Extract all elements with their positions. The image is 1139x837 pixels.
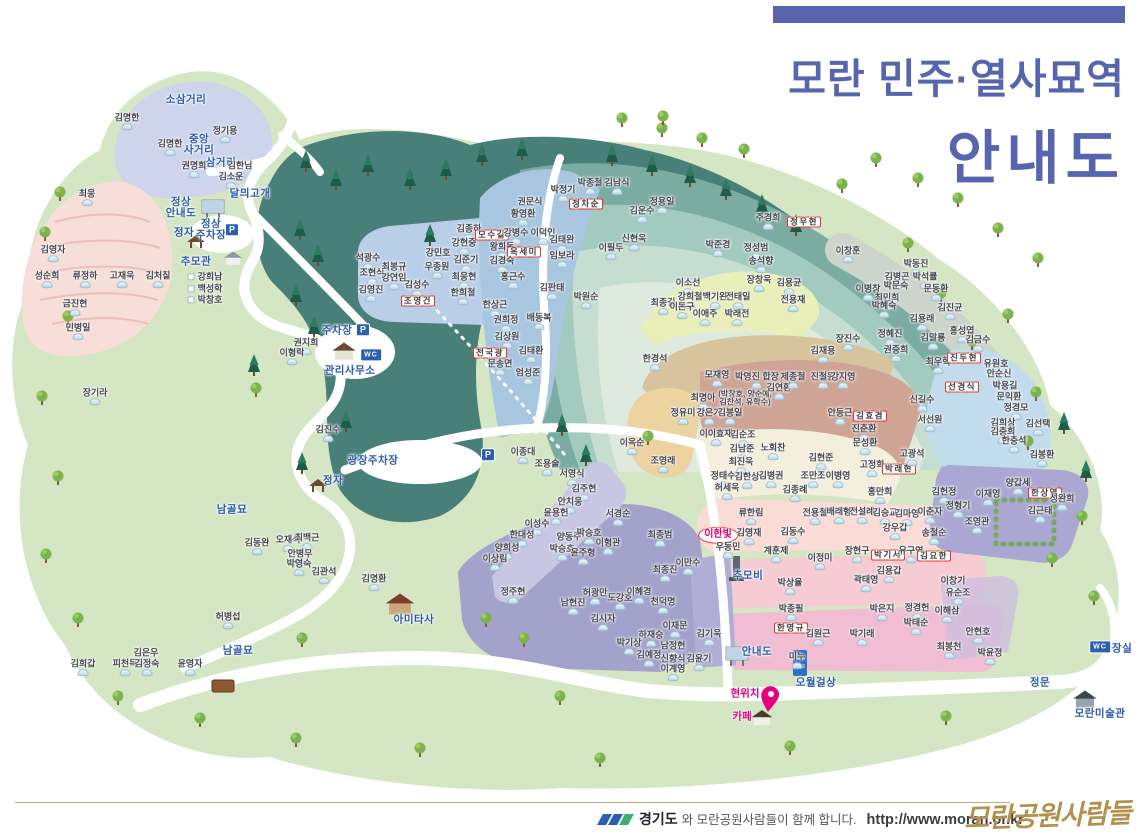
- map-grave-label: 윤주형: [571, 548, 596, 565]
- map-grave-label: 성완희: [1050, 494, 1075, 511]
- map-grave-label: 장진수: [836, 334, 861, 351]
- map-grave-label: 계훈제: [764, 546, 789, 563]
- map-grave-label: 고정희: [860, 460, 885, 477]
- footer-tagline: 와 모란공원사람들이 함께 합니다.: [682, 809, 857, 828]
- map-place-label: 소삼거리: [166, 94, 207, 105]
- map-grave-label: 권명희: [182, 161, 207, 178]
- map-place-label: 오월걸상: [796, 677, 837, 688]
- map-place-label: 아미타사: [394, 614, 435, 625]
- map-grave-label: 우종원: [425, 262, 450, 279]
- map-grave-label: 김현준: [809, 453, 834, 470]
- map-grave-label: 박혜숙: [872, 301, 897, 318]
- map-grave-label: 노회찬: [761, 443, 786, 460]
- map-grave-label: 제종철: [781, 372, 806, 389]
- map-grave-label: 류정하: [73, 271, 98, 288]
- map-grave-label: 안동근: [828, 408, 853, 425]
- map-grave-label: 성순희: [35, 271, 60, 288]
- map-place-label: 주차장: [322, 325, 352, 336]
- map-grave-label: 한영규: [774, 623, 808, 634]
- parking-icon: P: [481, 448, 495, 461]
- map-grave-label: 고광석: [900, 449, 925, 466]
- gyeonggi-label: 경기도: [639, 809, 678, 829]
- map-grave-label: 이애주: [693, 309, 718, 326]
- map-grave-label: 류한림: [739, 508, 764, 525]
- map-grave-label: 조영관: [965, 517, 990, 534]
- map-grave-label: 주경희: [756, 213, 781, 230]
- map-place-label: 정상 주차장: [196, 219, 226, 241]
- parking-icon: P: [356, 323, 370, 336]
- map-grave-label: 홍근수: [501, 272, 526, 289]
- map-subtitle: 안내도: [765, 111, 1125, 195]
- map-place-label: 정상 안내도: [166, 197, 196, 219]
- map-grave-label: 김선택: [1026, 419, 1051, 436]
- map-grave-label: 최봉천: [937, 642, 962, 659]
- map-grave-label: 문송면: [488, 359, 513, 376]
- map-grave-label: 조용술: [535, 459, 560, 476]
- map-grave-label: 윤영자: [178, 659, 203, 676]
- map-grave-label: 금진현: [63, 299, 88, 316]
- map-grave-label: 미누: [789, 652, 806, 669]
- map-grave-label: 이이효재: [699, 429, 732, 446]
- map-grave-label: 문동환: [924, 284, 949, 301]
- map-grave-label: 전용철: [803, 508, 828, 525]
- map-place-label: 추모비: [733, 570, 763, 581]
- restroom-icon: WC: [1089, 640, 1111, 653]
- map-grave-label: 강현중: [452, 238, 477, 255]
- map-place-label: 관리사무소: [325, 365, 376, 376]
- map-grave-label: (박창호, 양순예, 김찬석, 유학수): [718, 391, 772, 408]
- map-grave-label: 장창욱: [747, 275, 772, 292]
- map-grave-label: 백기완: [703, 292, 728, 309]
- map-grave-label: 정주현: [501, 587, 526, 604]
- map-canvas: 소삼거리김명한정기용중앙 사거리김명한삼거리권명희김한님김소운달믜고개정상 안내…: [0, 0, 1139, 837]
- map-grave-label: 전국광: [473, 348, 507, 359]
- map-grave-label: 최웅: [79, 189, 96, 206]
- map-grave-label: 김진수: [316, 425, 341, 442]
- map-grave-label: 강지영: [831, 372, 856, 389]
- map-place-label: 정자: [323, 475, 343, 486]
- map-grave-label: 김봉일: [718, 408, 743, 425]
- map-grave-label: 이필두: [599, 243, 624, 260]
- map-grave-label: 한충석: [1002, 436, 1027, 453]
- map-grave-label: 박영숙: [287, 559, 312, 576]
- map-grave-label: 정기용: [213, 126, 238, 143]
- map-grave-label: 이해삼: [935, 606, 960, 623]
- map-grave-label: 김기욱: [697, 629, 722, 646]
- map-grave-label: 김남식: [605, 178, 630, 195]
- map-grave-label: 송철순: [922, 528, 947, 545]
- map-place-label: 광장주차장: [348, 455, 399, 466]
- map-grave-label: 고재욱: [110, 271, 135, 288]
- map-grave-label: 이혜경: [627, 587, 652, 604]
- map-grave-label: 김판태: [540, 283, 565, 300]
- map-grave-label: 양갑세: [1006, 478, 1031, 495]
- map-place-label: 남골묘: [223, 645, 253, 656]
- map-grave-label: 김요한: [917, 551, 951, 562]
- map-grave-label: 유순조: [946, 588, 971, 605]
- restroom-icon: WC: [360, 348, 382, 361]
- map-grave-label: 김정숙: [135, 659, 160, 676]
- map-grave-label: 안현호: [966, 627, 991, 644]
- map-grave-label: 김금수: [966, 335, 991, 352]
- map-grave-label: 이형락: [280, 348, 305, 365]
- map-grave-label: 이재영: [976, 489, 1001, 506]
- map-grave-label: 조영래: [651, 456, 676, 473]
- map-grave-label: 이만수: [676, 558, 701, 575]
- map-grave-label: 이창훈: [836, 246, 861, 263]
- footer-rule: [15, 802, 1010, 803]
- map-grave-label: 김희갑: [71, 659, 96, 676]
- map-grave-label: 우동민: [716, 542, 741, 559]
- map-grave-label: 김동완: [245, 538, 270, 555]
- map-grave-label: 이종대: [511, 447, 536, 464]
- map-grave-label: 박상율: [778, 578, 803, 595]
- map-grave-label: 김처칠: [146, 271, 171, 288]
- map-grave-label: 강희남: [188, 272, 223, 281]
- map-grave-label: 정차순: [569, 199, 603, 210]
- map-grave-label: 김말룡: [921, 333, 946, 350]
- map-grave-label: 천덕명: [651, 597, 676, 614]
- map-grave-label: 권희정: [494, 315, 519, 332]
- map-grave-label: 이형관: [596, 538, 621, 555]
- map-grave-label: 김예정: [637, 650, 662, 667]
- map-grave-label: 김용래: [910, 314, 935, 331]
- map-grave-label: 황영환: [511, 209, 536, 226]
- title-accent-bar: [773, 6, 1125, 23]
- map-grave-label: 김봉환: [1030, 450, 1055, 467]
- map-grave-label: 정유미: [671, 408, 696, 425]
- map-grave-label: 정우현: [787, 217, 821, 228]
- map-grave-label: 모재영: [705, 370, 730, 387]
- map-grave-label: 민병일: [66, 323, 91, 340]
- map-grave-label: 최종범: [648, 530, 673, 547]
- map-grave-label: 송석향: [749, 256, 774, 273]
- map-grave-label: 최종진: [653, 565, 678, 582]
- map-grave-label: 김영진: [359, 285, 384, 302]
- map-grave-label: 김용균: [777, 278, 802, 295]
- map-grave-label: 문성환: [853, 438, 878, 455]
- map-grave-label: 선경식: [945, 382, 979, 393]
- map-grave-label: 박준경: [706, 240, 731, 257]
- map-place-label: 중앙 사거리: [184, 134, 214, 156]
- map-grave-label: 김효겸: [853, 411, 887, 422]
- map-grave-label: 김명한: [115, 113, 140, 130]
- map-grave-label: 신현욱: [622, 234, 647, 251]
- map-grave-label: 김근태: [1028, 506, 1053, 523]
- map-place-label: 남골묘: [217, 504, 247, 515]
- map-grave-label: 박창호: [188, 295, 223, 304]
- map-grave-label: 남현진: [561, 598, 586, 615]
- map-grave-label: 이재문: [663, 621, 688, 638]
- map-grave-label: 이돈구: [670, 302, 695, 319]
- map-grave-label: 김진균: [938, 303, 963, 320]
- map-grave-label: 임보라: [550, 251, 575, 268]
- map-grave-label: 장기라: [83, 388, 108, 405]
- map-grave-label: 김원근: [806, 629, 831, 646]
- map-title: 모란 민주·열사묘역: [765, 45, 1125, 105]
- map-grave-label: 김윤기: [687, 654, 712, 671]
- map-grave-label: 서선원: [918, 415, 943, 432]
- map-grave-label: 엄성준: [516, 368, 541, 385]
- map-place-label: 카페: [732, 711, 751, 722]
- footer: 경기도 와 모란공원사람들이 함께 합니다. http://www.moran.…: [0, 797, 1139, 837]
- map-grave-label: 서경순: [606, 509, 631, 526]
- map-grave-label: 박태순: [904, 618, 929, 635]
- map-grave-label: 이춘자: [918, 507, 943, 524]
- map-place-label: 정문: [1030, 677, 1050, 688]
- map-place-label: 달믜고개: [230, 188, 271, 199]
- map-place-label: 정자: [174, 227, 194, 238]
- moran-people-logo: 모란공원사람들: [963, 791, 1131, 836]
- map-grave-label: 강연임: [382, 273, 407, 290]
- map-grave-label: 배동복: [527, 313, 552, 330]
- parking-icon: P: [225, 223, 239, 236]
- map-grave-label: 박원순: [574, 292, 599, 309]
- map-grave-label: 박기래: [850, 629, 875, 646]
- map-grave-label: 배래형: [827, 507, 852, 524]
- map-grave-label: 박종철: [578, 178, 603, 195]
- map-grave-label: 김명한: [158, 139, 183, 156]
- map-grave-label: 김용갑: [877, 566, 902, 583]
- map-grave-label: 김종례: [783, 485, 808, 502]
- map-place-label: 안내도: [742, 646, 772, 657]
- map-grave-label: 곽태영: [854, 575, 879, 592]
- map-grave-label: 이계영: [661, 664, 686, 681]
- map-grave-label: 김동수: [781, 527, 806, 544]
- map-grave-label: 전태일: [726, 292, 751, 309]
- map-grave-label: 백성학: [188, 284, 223, 293]
- map-grave-label: 박은지: [870, 604, 895, 621]
- map-grave-label: 이병영: [826, 471, 851, 488]
- map-grave-label: 김시자: [591, 614, 616, 631]
- map-grave-label: 이정미: [808, 553, 833, 570]
- map-grave-label: 장현구: [845, 546, 870, 563]
- map-grave-label: 김관석: [312, 567, 337, 584]
- map-grave-label: 김재용: [811, 346, 836, 363]
- map-place-label: 모란미술관: [1075, 708, 1126, 719]
- map-grave-label: 한희철: [451, 288, 476, 305]
- map-grave-label: 허병섭: [216, 612, 241, 629]
- map-grave-label: 권중희: [884, 345, 909, 362]
- map-grave-label: 강우갑: [883, 523, 908, 540]
- map-grave-label: 한경석: [643, 354, 668, 371]
- map-grave-label: 김운수: [630, 206, 655, 223]
- map-grave-label: 박래전: [725, 309, 750, 326]
- map-grave-label: 김명환: [362, 574, 387, 591]
- map-place-label: 현위치: [731, 688, 760, 699]
- map-grave-label: 김준기: [454, 255, 479, 272]
- map-grave-label: 박종필: [779, 604, 804, 621]
- map-grave-label: 허세욱: [715, 483, 740, 500]
- title-block: 모란 민주·열사묘역 안내도: [765, 6, 1125, 195]
- map-grave-label: 신길수: [910, 395, 935, 412]
- map-grave-label: 전설례: [850, 507, 875, 524]
- map-grave-label: 홍만희: [868, 487, 893, 504]
- map-grave-label: 조영건: [401, 296, 435, 307]
- map-grave-label: 이상림: [483, 554, 508, 571]
- map-grave-label: 박윤정: [978, 648, 1003, 665]
- map-grave-label: 김태환: [519, 346, 544, 363]
- map-place-label: 추모관: [181, 256, 211, 267]
- map-grave-label: 김병권: [759, 471, 784, 488]
- gyeonggi-logo-icon: [600, 814, 631, 825]
- map-grave-label: 이옥순: [620, 438, 645, 455]
- map-grave-label: 전용재: [781, 295, 806, 312]
- map-grave-label: 진두현: [947, 353, 981, 364]
- map-grave-label: 허광만: [583, 588, 608, 605]
- map-grave-label: 김영자: [41, 245, 66, 262]
